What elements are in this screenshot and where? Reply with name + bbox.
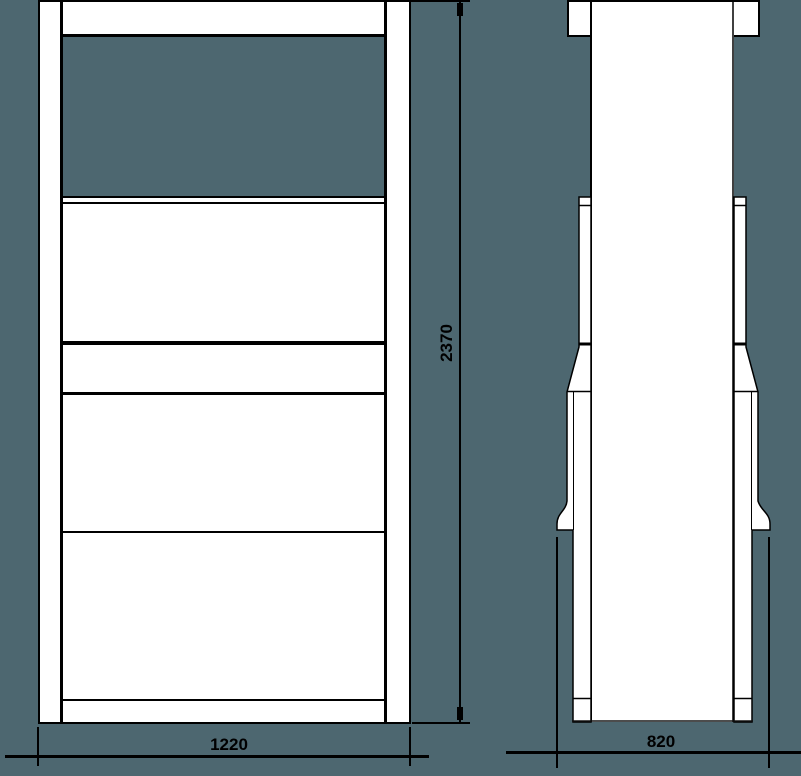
side-view [540, 0, 801, 776]
front-top-panel [63, 34, 384, 198]
depth-dim-label: 820 [647, 732, 675, 752]
front-shelf-line-4 [63, 531, 384, 533]
height-dim-tick-top [457, 3, 463, 16]
depth-dim-ext-right [768, 537, 770, 768]
height-dim-label: 2370 [437, 324, 457, 362]
width-dim-ext-left [37, 727, 39, 766]
front-shelf-line-2 [63, 341, 384, 345]
height-dim-line [459, 1, 461, 723]
height-dim-ext-bottom [412, 722, 470, 724]
front-shelf-line-3 [63, 392, 384, 395]
drawing-canvas: 2370 1220 820 [0, 0, 801, 776]
front-shelf-line-1 [63, 202, 384, 204]
height-dim-tick-bottom [457, 707, 463, 720]
front-bottom-rail-line [63, 699, 384, 701]
width-dim-ext-right [409, 727, 411, 766]
depth-dim-ext-left [556, 537, 558, 768]
front-right-post-inner-line [384, 0, 387, 722]
height-dim-ext-top [411, 0, 470, 2]
side-body [590, 0, 734, 722]
width-dim-line [5, 755, 429, 758]
width-dim-label: 1220 [210, 735, 248, 755]
